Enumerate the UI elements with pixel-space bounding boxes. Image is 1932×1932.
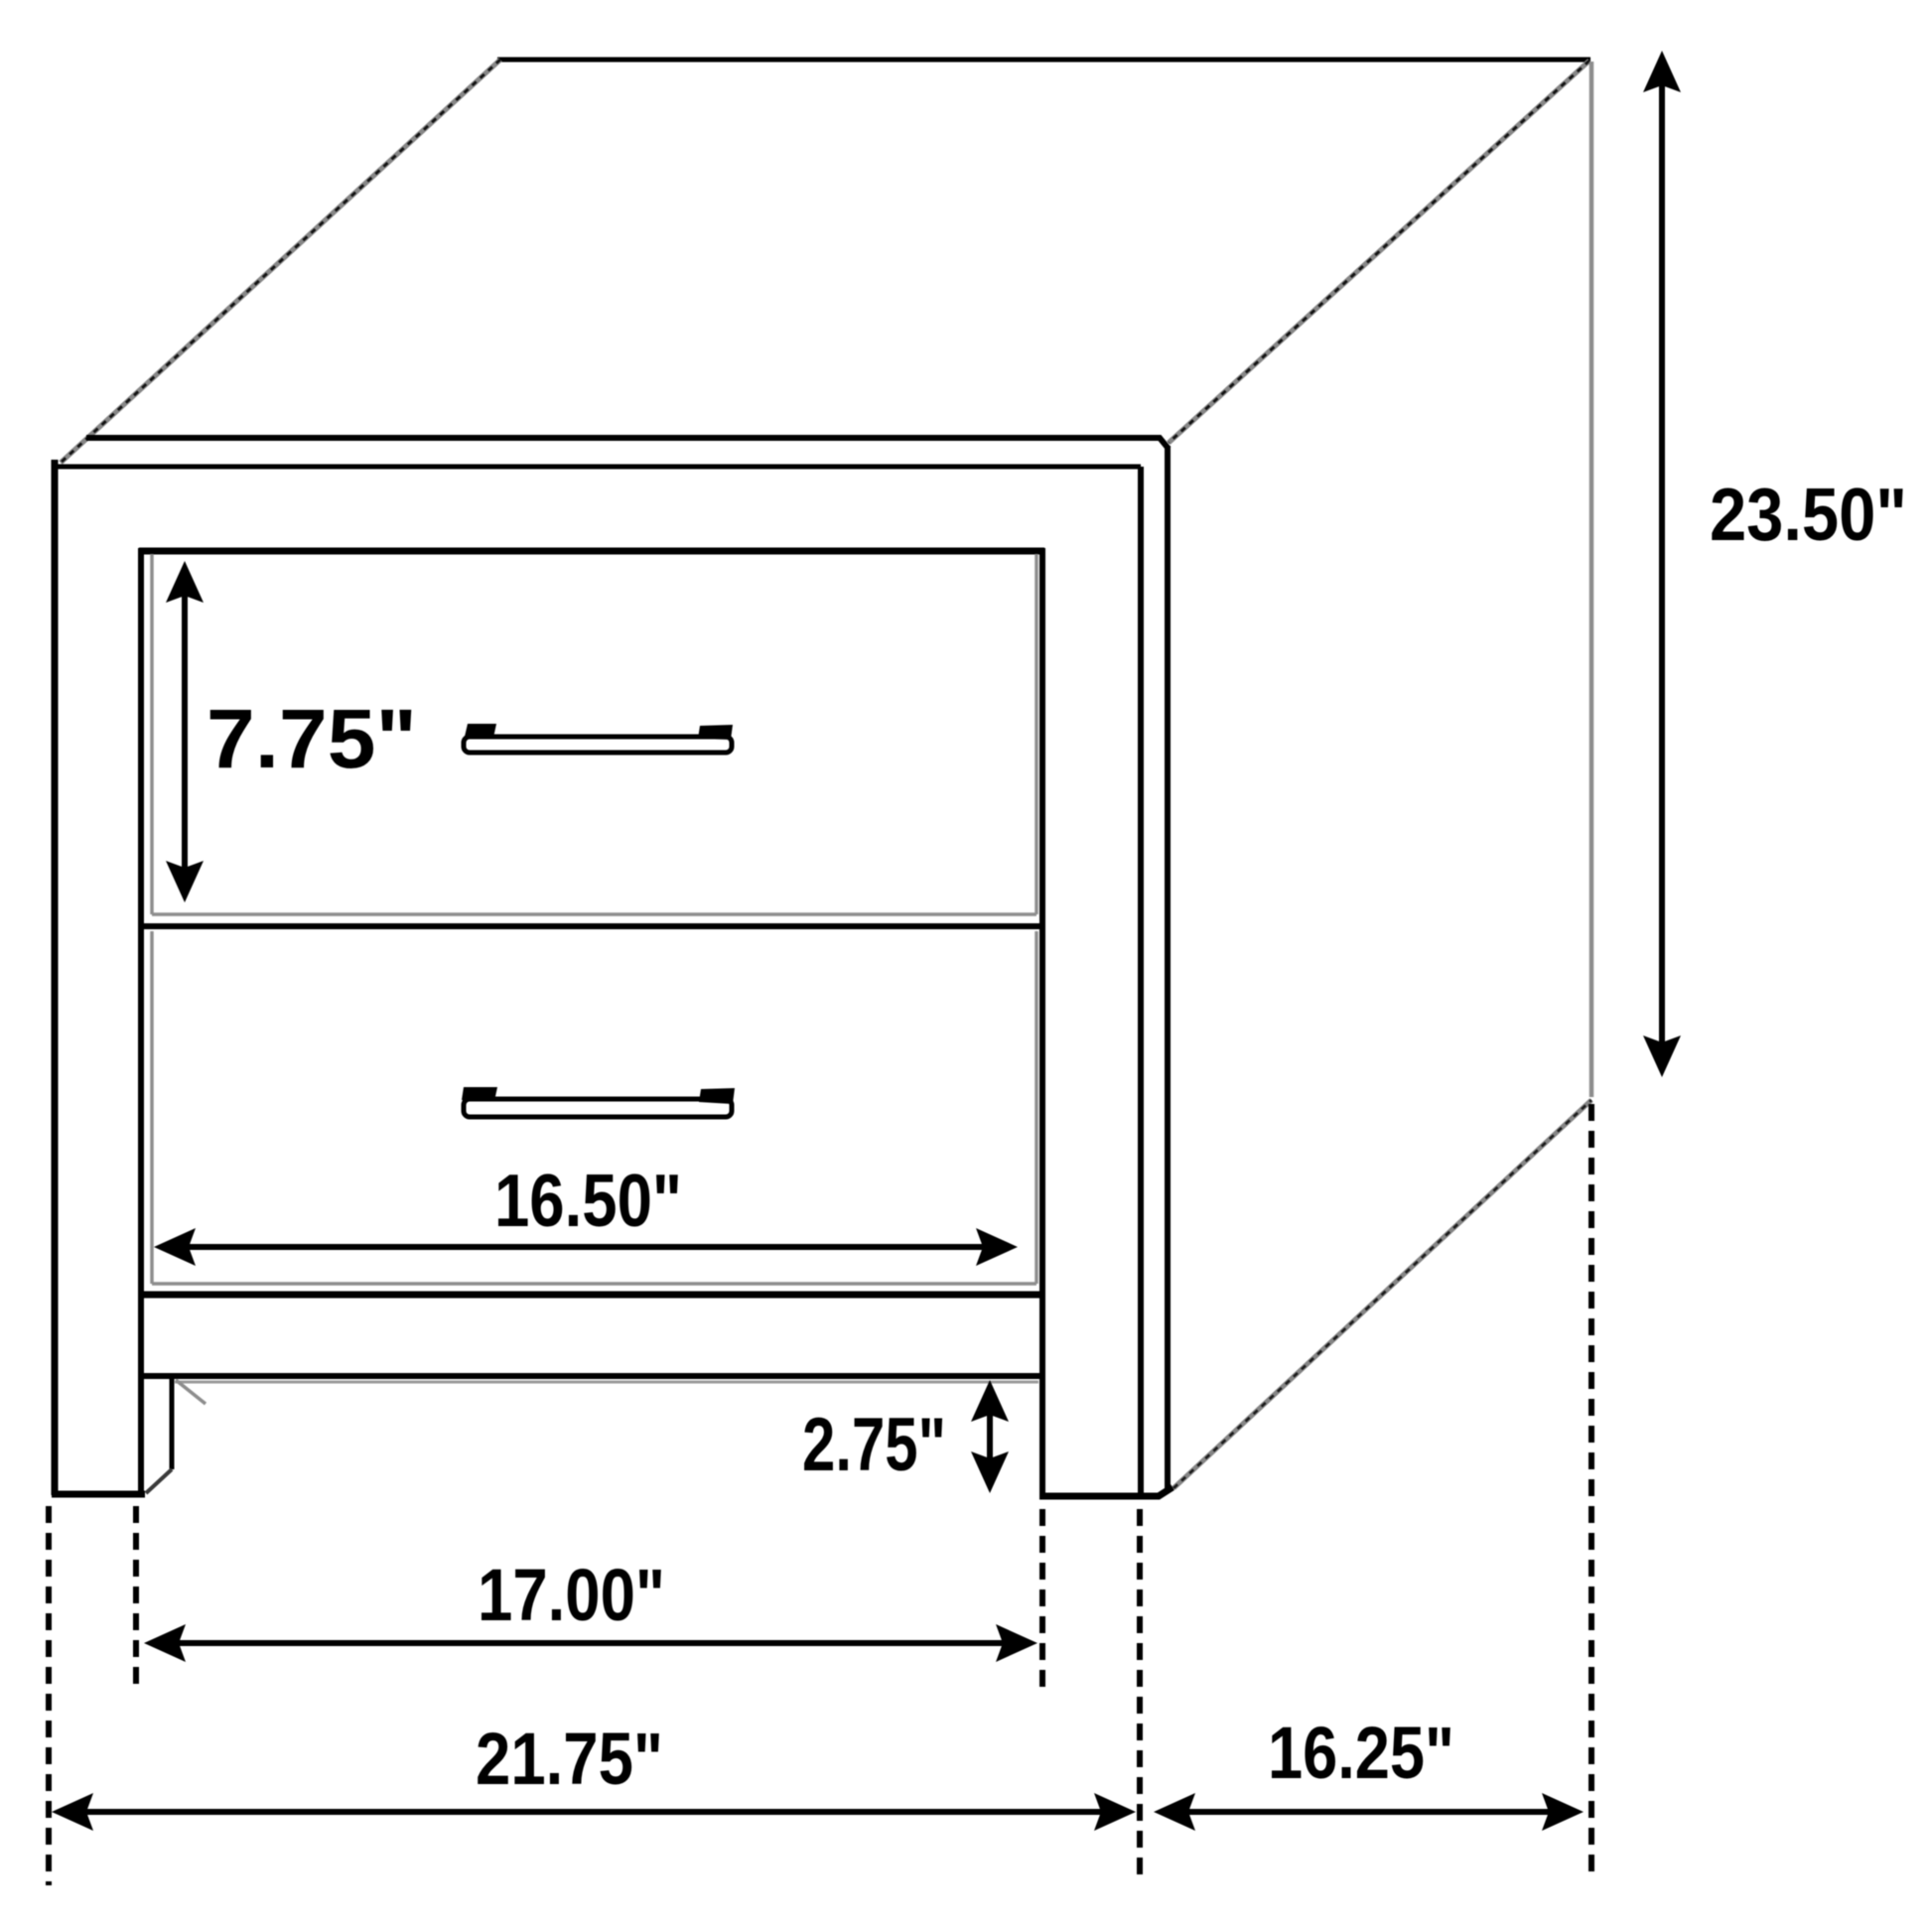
svg-text:16.25": 16.25" [1268,1712,1454,1794]
svg-text:17.00": 17.00" [478,1554,665,1636]
svg-text:16.50": 16.50" [494,1159,682,1242]
svg-text:2.75": 2.75" [802,1403,946,1487]
svg-text:7.75": 7.75" [207,692,417,785]
svg-text:23.50": 23.50" [1710,473,1907,556]
svg-text:21.75": 21.75" [476,1718,663,1800]
